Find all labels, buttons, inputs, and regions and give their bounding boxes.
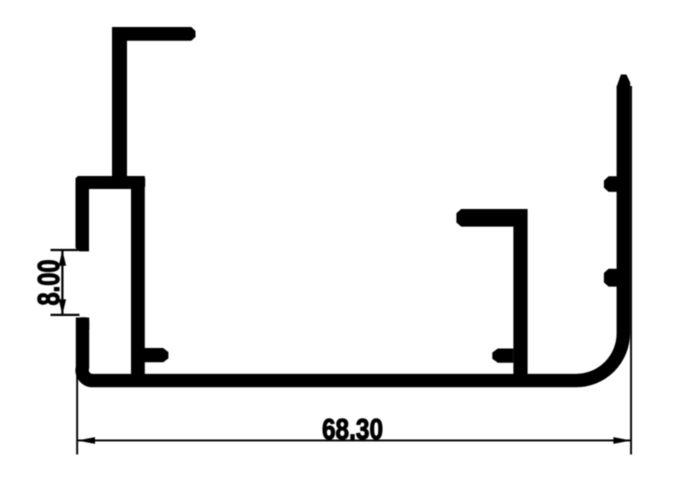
svg-text:68.30: 68.30 (322, 414, 383, 446)
svg-text:8.00: 8.00 (31, 260, 66, 306)
